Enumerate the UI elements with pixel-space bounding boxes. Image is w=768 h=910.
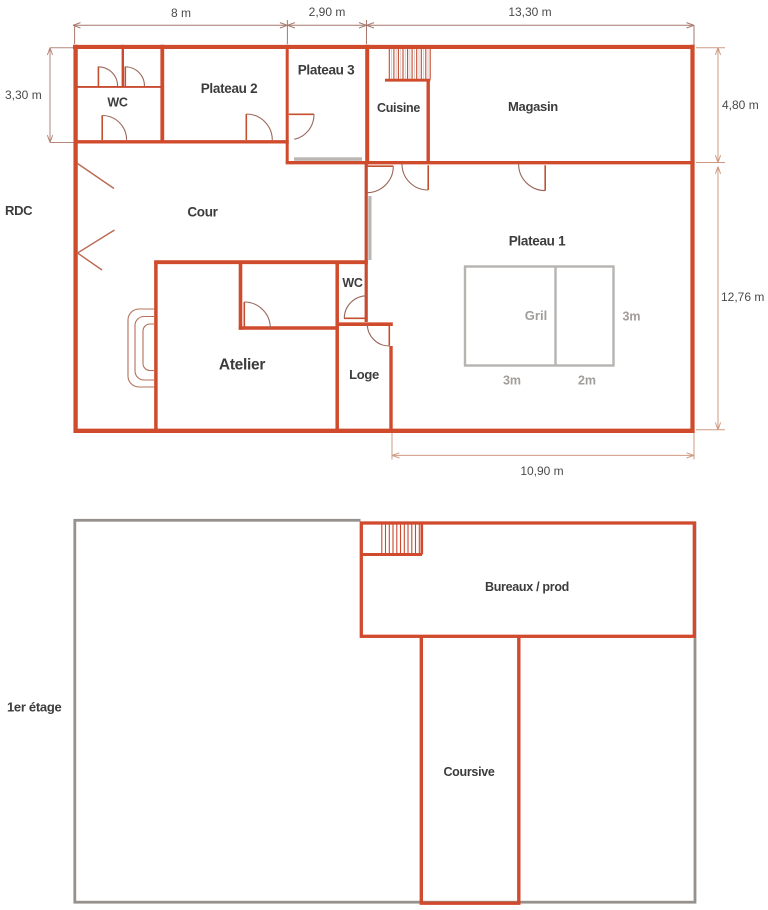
svg-text:13,30 m: 13,30 m [508, 5, 551, 19]
svg-text:2m: 2m [578, 374, 596, 388]
svg-text:4,80 m: 4,80 m [722, 98, 759, 112]
svg-text:10,90 m: 10,90 m [520, 464, 563, 478]
svg-text:3m: 3m [503, 374, 521, 388]
svg-text:WC: WC [342, 276, 362, 290]
svg-text:Atelier: Atelier [219, 357, 265, 374]
svg-text:Plateau 2: Plateau 2 [201, 81, 258, 96]
svg-text:Cour: Cour [187, 205, 218, 220]
svg-text:3,30 m: 3,30 m [5, 88, 42, 102]
svg-text:Plateau 1: Plateau 1 [509, 234, 566, 249]
svg-text:3m: 3m [622, 310, 640, 324]
svg-text:RDC: RDC [5, 203, 33, 218]
svg-text:Magasin: Magasin [508, 99, 558, 114]
svg-text:12,76 m: 12,76 m [721, 290, 764, 304]
svg-text:Gril: Gril [525, 308, 547, 323]
svg-text:Bureaux / prod: Bureaux / prod [485, 580, 569, 594]
svg-text:WC: WC [107, 96, 127, 110]
svg-text:Loge: Loge [349, 367, 379, 382]
svg-text:Cuisine: Cuisine [377, 101, 420, 115]
svg-text:8 m: 8 m [171, 6, 191, 20]
svg-text:Coursive: Coursive [443, 765, 494, 779]
svg-text:Plateau 3: Plateau 3 [298, 63, 355, 78]
svg-text:2,90 m: 2,90 m [309, 5, 346, 19]
svg-text:1er étage: 1er étage [7, 700, 61, 715]
